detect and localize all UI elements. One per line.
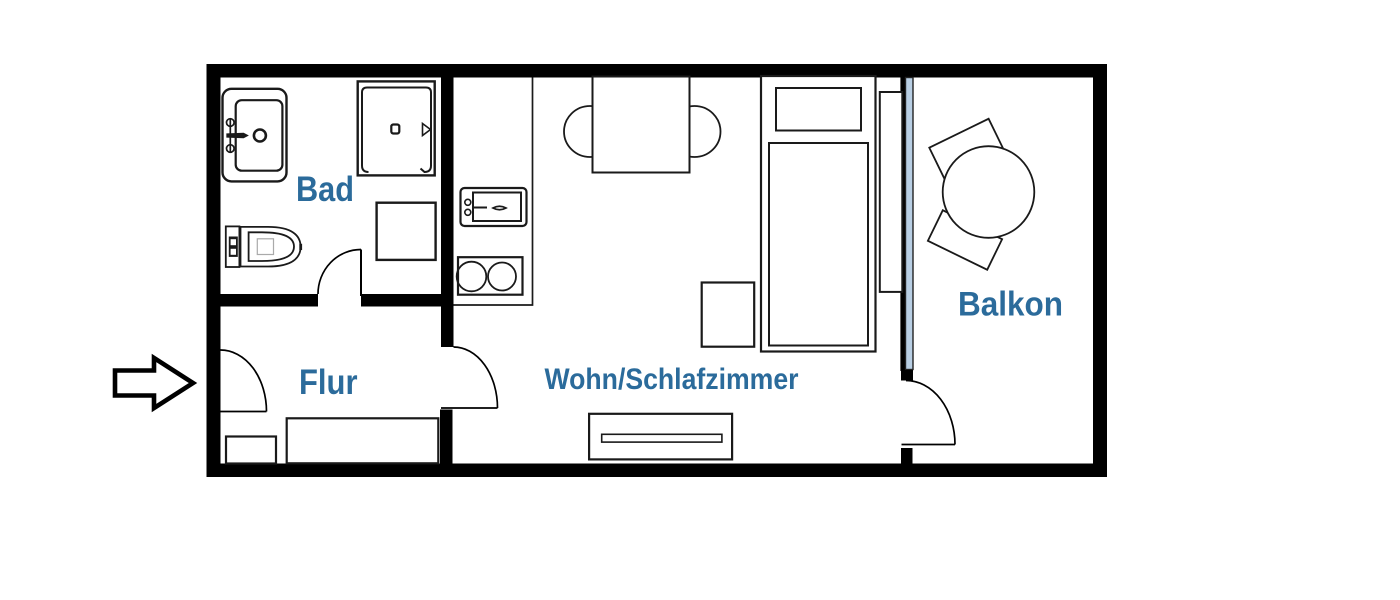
svg-text:Bad: Bad	[296, 170, 354, 209]
svg-text:Flur: Flur	[299, 363, 358, 402]
svg-text:Wohn/Schlafzimmer: Wohn/Schlafzimmer	[545, 363, 799, 396]
svg-text:Balkon: Balkon	[958, 286, 1063, 324]
